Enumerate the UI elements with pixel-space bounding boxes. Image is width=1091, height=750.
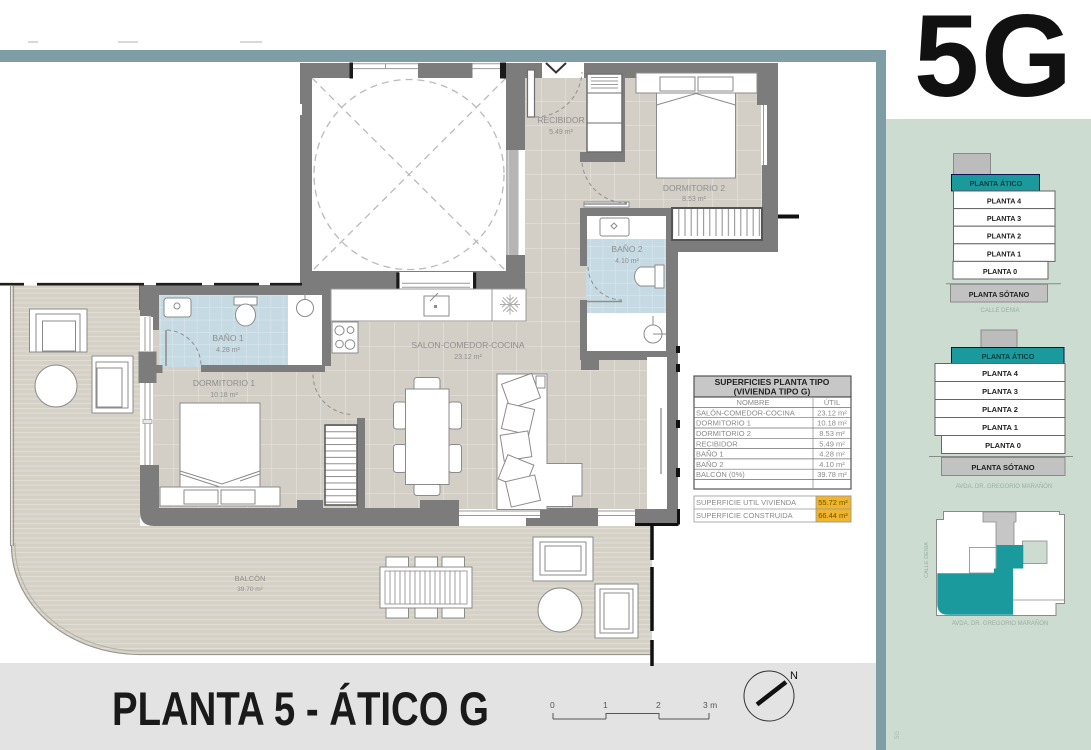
svg-text:23.12 m²: 23.12 m²: [454, 354, 482, 361]
svg-text:N: N: [790, 670, 798, 682]
svg-text:(VIVIENDA TIPO G): (VIVIENDA TIPO G): [734, 387, 811, 397]
svg-text:RECIBIDOR: RECIBIDOR: [537, 115, 584, 125]
svg-text:PLANTA 4: PLANTA 4: [987, 197, 1021, 206]
svg-text:SALON-COMEDOR-COCINA: SALON-COMEDOR-COCINA: [411, 340, 524, 350]
svg-text:SUPERFICIES PLANTA TIPO: SUPERFICIES PLANTA TIPO: [715, 377, 830, 387]
svg-text:PLANTA 1: PLANTA 1: [982, 423, 1018, 432]
svg-text:PLANTA 0: PLANTA 0: [983, 267, 1017, 276]
svg-text:2: 2: [656, 700, 661, 710]
svg-text:5G: 5G: [914, 0, 1074, 121]
svg-text:PLANTA ÁTICO: PLANTA ÁTICO: [982, 352, 1035, 361]
svg-text:4.10 m²: 4.10 m²: [819, 460, 845, 469]
svg-text:BALCÓN: BALCÓN: [235, 574, 266, 583]
svg-text:BAÑO 1: BAÑO 1: [212, 333, 243, 343]
svg-text:23.12 m²: 23.12 m²: [817, 408, 847, 417]
svg-text:SUPERFICIE CONSTRUIDA: SUPERFICIE CONSTRUIDA: [696, 511, 793, 520]
svg-text:AVDA. DR. GREGORIO MARAÑÓN: AVDA. DR. GREGORIO MARAÑÓN: [952, 620, 1049, 627]
svg-text:PLANTA 1: PLANTA 1: [987, 249, 1021, 258]
svg-text:AVDA. DR. GREGORIO MARAÑÓN: AVDA. DR. GREGORIO MARAÑÓN: [956, 483, 1053, 490]
svg-text:PLANTA 4: PLANTA 4: [982, 369, 1019, 378]
svg-text:4.10 m²: 4.10 m²: [615, 258, 639, 265]
svg-text:BAÑO 1: BAÑO 1: [696, 450, 724, 459]
svg-text:PLANTA ÁTICO: PLANTA ÁTICO: [970, 179, 1023, 188]
svg-text:SALÓN-COMEDOR-COCINA: SALÓN-COMEDOR-COCINA: [696, 408, 795, 417]
svg-text:PLANTA 3: PLANTA 3: [987, 214, 1021, 223]
svg-text:8.53 m²: 8.53 m²: [819, 429, 845, 438]
svg-text:1: 1: [603, 700, 608, 710]
svg-text:39.78 m²: 39.78 m²: [817, 470, 847, 479]
svg-text:66.44 m²: 66.44 m²: [818, 511, 848, 520]
svg-text:55.72 m²: 55.72 m²: [818, 498, 848, 507]
svg-text:5.49 m²: 5.49 m²: [819, 439, 845, 448]
svg-text:PLANTA 5 - ÁTICO G: PLANTA 5 - ÁTICO G: [112, 682, 489, 735]
svg-text:CALLE DENIA: CALLE DENIA: [980, 308, 1019, 314]
svg-text:10.18 m²: 10.18 m²: [210, 392, 238, 399]
svg-text:0: 0: [550, 700, 555, 710]
svg-text:PLANTA 2: PLANTA 2: [987, 232, 1021, 241]
svg-text:SUPERFICIE UTIL VIVIENDA: SUPERFICIE UTIL VIVIENDA: [696, 498, 796, 507]
svg-text:NOMBRE: NOMBRE: [737, 398, 770, 407]
svg-text:4.28 m²: 4.28 m²: [819, 450, 845, 459]
svg-text:CALLE DENIA: CALLE DENIA: [924, 542, 930, 578]
svg-text:PLANTA SÓTANO: PLANTA SÓTANO: [971, 463, 1034, 472]
svg-text:DORMITORIO 2: DORMITORIO 2: [696, 429, 751, 438]
svg-text:DORMITORIO 1: DORMITORIO 1: [696, 419, 751, 428]
svg-text:4.28 m²: 4.28 m²: [216, 347, 240, 354]
svg-text:5.49 m²: 5.49 m²: [549, 129, 573, 136]
svg-text:5G: 5G: [895, 731, 901, 739]
svg-text:PLANTA 0: PLANTA 0: [985, 441, 1021, 450]
svg-text:10.18 m²: 10.18 m²: [817, 419, 847, 428]
svg-text:DORMITORIO 2: DORMITORIO 2: [663, 183, 725, 193]
svg-text:PLANTA 3: PLANTA 3: [982, 387, 1018, 396]
svg-text:PLANTA SÓTANO: PLANTA SÓTANO: [969, 290, 1030, 299]
svg-text:8.53 m²: 8.53 m²: [682, 196, 706, 203]
svg-text:PLANTA 2: PLANTA 2: [982, 405, 1018, 414]
svg-text:ÚTIL: ÚTIL: [824, 398, 840, 407]
svg-text:BALCÓN (0%): BALCÓN (0%): [696, 470, 745, 479]
svg-text:BAÑO 2: BAÑO 2: [696, 460, 724, 469]
svg-text:BAÑO 2: BAÑO 2: [611, 244, 642, 254]
svg-text:RECIBIDOR: RECIBIDOR: [696, 439, 738, 448]
svg-text:39.70 m²: 39.70 m²: [237, 586, 263, 593]
svg-text:3 m: 3 m: [703, 700, 717, 710]
svg-text:DORMITORIO 1: DORMITORIO 1: [193, 378, 255, 388]
